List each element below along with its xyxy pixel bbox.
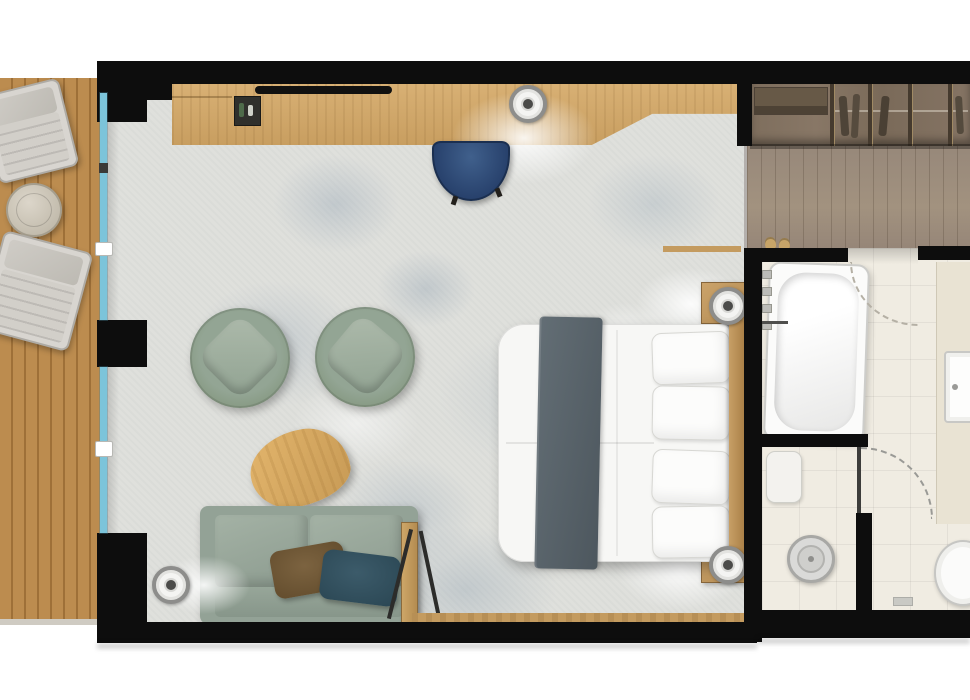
sliding-door-handle bbox=[95, 441, 113, 457]
desk-spotlight bbox=[509, 85, 547, 123]
table-ring bbox=[16, 193, 52, 227]
wall-bottom-main bbox=[97, 622, 757, 643]
wardrobe-shelf bbox=[754, 87, 828, 115]
spotlight-core bbox=[723, 560, 733, 570]
tv bbox=[255, 86, 392, 94]
bed-throw bbox=[534, 316, 602, 569]
basin-drain bbox=[952, 384, 958, 390]
duvet-fold bbox=[616, 330, 618, 556]
wall-trim bbox=[412, 613, 745, 622]
shower-bench bbox=[766, 451, 802, 503]
wall-hook bbox=[762, 304, 772, 313]
bed-pillow bbox=[651, 449, 731, 506]
floor-transition-line bbox=[744, 146, 747, 248]
tub-faucet bbox=[762, 321, 788, 324]
armchair-cushion bbox=[321, 312, 408, 399]
bed-pillow bbox=[651, 331, 731, 386]
entry-corridor-floor bbox=[747, 146, 970, 248]
hanging-clothes bbox=[955, 96, 964, 134]
wall-shadow bbox=[97, 643, 757, 649]
bottle-white bbox=[248, 105, 253, 116]
spotlight-core bbox=[523, 99, 533, 109]
hanging-clothes bbox=[839, 96, 850, 136]
rain-shower-head bbox=[787, 535, 835, 583]
wall-top-corner-step bbox=[147, 61, 172, 100]
minibar-tray bbox=[234, 96, 261, 126]
armchair-cushion bbox=[196, 313, 284, 401]
glass-wall-upper bbox=[100, 93, 107, 320]
shower-door-leaf bbox=[857, 447, 861, 517]
nightstand-spotlight-top bbox=[709, 287, 747, 325]
desk-seam bbox=[172, 96, 232, 98]
nightstand-spotlight-bottom bbox=[709, 546, 747, 584]
sliding-door-handle bbox=[95, 242, 113, 256]
wall-hook bbox=[762, 270, 772, 279]
wall-desk-stub bbox=[737, 61, 752, 146]
armchair-left bbox=[190, 308, 290, 408]
sofa-pillow-teal bbox=[318, 548, 402, 607]
washbasin bbox=[944, 351, 970, 423]
wardrobe bbox=[750, 84, 970, 146]
bottle-green bbox=[239, 103, 244, 117]
wall-trim bbox=[663, 246, 741, 252]
floor-plan bbox=[0, 0, 970, 700]
wardrobe-shadow bbox=[750, 144, 970, 149]
wardrobe-post bbox=[830, 84, 835, 146]
armchair-right bbox=[315, 307, 415, 407]
glass-lock-mark bbox=[99, 163, 108, 173]
terrace-side-table bbox=[6, 183, 62, 237]
wardrobe-post bbox=[908, 84, 913, 146]
hanging-clothes bbox=[851, 94, 860, 138]
wardrobe-post bbox=[948, 84, 953, 146]
wall-top bbox=[97, 61, 970, 84]
headboard bbox=[729, 321, 744, 565]
wall-bath-top-right bbox=[918, 246, 970, 260]
wall-hook bbox=[762, 287, 772, 296]
bathtub-basin bbox=[773, 272, 859, 433]
spotlight-core bbox=[723, 301, 733, 311]
doorway-shadow bbox=[848, 248, 918, 264]
terrace-edge bbox=[0, 619, 100, 625]
spotlight-core bbox=[166, 580, 176, 590]
wall-bath-top-left bbox=[744, 248, 848, 262]
bed-pillow bbox=[652, 385, 731, 440]
wardrobe-post bbox=[868, 84, 873, 146]
hanging-clothes bbox=[878, 96, 889, 137]
floor-spotlight bbox=[152, 566, 190, 604]
wall-tub-bottom bbox=[757, 434, 868, 447]
wall-left-mid bbox=[97, 320, 147, 367]
wall-shadow bbox=[757, 638, 970, 644]
toilet-flush-mark bbox=[893, 597, 913, 606]
wall-shower-toilet-divider bbox=[856, 513, 872, 613]
bathtub bbox=[763, 261, 870, 442]
shower-head-center bbox=[808, 556, 814, 562]
wall-bath-bottom bbox=[757, 610, 970, 638]
